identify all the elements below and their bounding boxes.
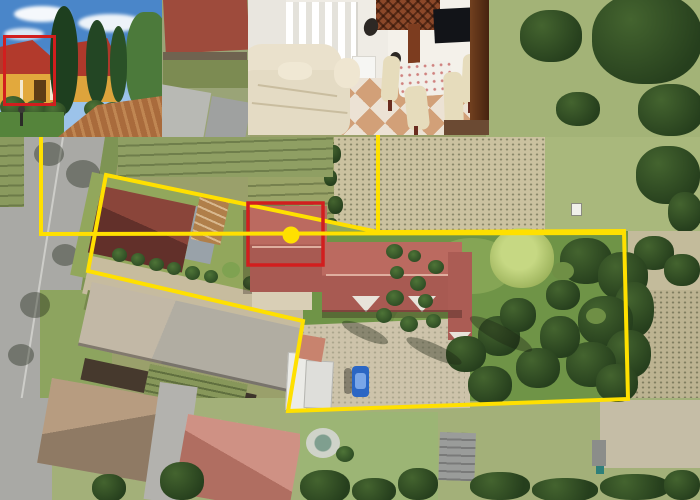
callout-line-exterior (41, 137, 624, 234)
dining-chair (404, 85, 430, 131)
front-lawn (0, 112, 64, 137)
location-marker-dot (283, 227, 300, 244)
dining-chair (380, 55, 400, 102)
lamp-head (18, 106, 25, 113)
sofa-cushion (278, 62, 312, 80)
cypress-tree (110, 26, 127, 102)
cypress-tree (86, 20, 108, 104)
wood-post (470, 0, 489, 135)
inset-photo-exterior (0, 0, 162, 137)
cabinet (444, 120, 489, 135)
chair-leg (414, 126, 418, 135)
aerial-map (0, 0, 700, 500)
chair-leg (388, 100, 392, 111)
highlight-rectangle-inset (3, 35, 56, 106)
sofa-armrest (334, 58, 360, 88)
property-boundary-outline (88, 175, 628, 411)
inset-photo-interior (248, 0, 489, 135)
